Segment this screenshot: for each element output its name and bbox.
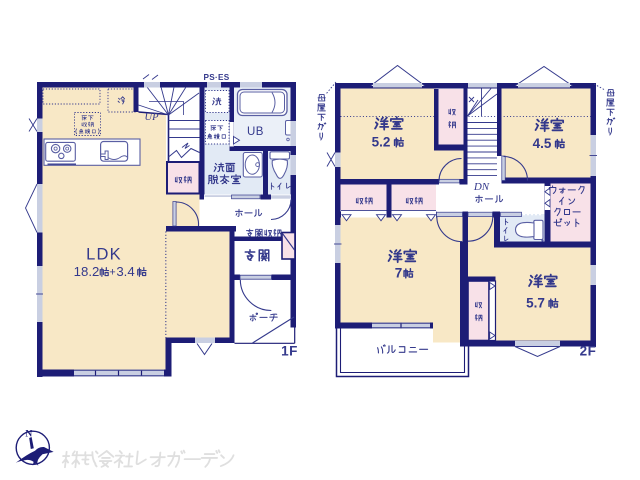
svg-text:PS·ES: PS·ES <box>203 73 229 82</box>
svg-text:DN: DN <box>473 181 490 193</box>
svg-text:1F: 1F <box>281 344 298 359</box>
svg-text:7: 7 <box>395 266 403 281</box>
svg-text:UB: UB <box>247 126 264 138</box>
svg-text:18.2: 18.2 <box>74 264 100 279</box>
svg-text:2F: 2F <box>580 344 597 359</box>
svg-text:3.4: 3.4 <box>116 264 134 279</box>
svg-text:UP: UP <box>145 112 160 123</box>
svg-text:LDK: LDK <box>86 246 122 264</box>
svg-text:4.5: 4.5 <box>533 136 552 151</box>
svg-text:+: + <box>109 267 115 279</box>
svg-text:5.2: 5.2 <box>372 135 391 150</box>
svg-text:5.7: 5.7 <box>526 296 545 311</box>
